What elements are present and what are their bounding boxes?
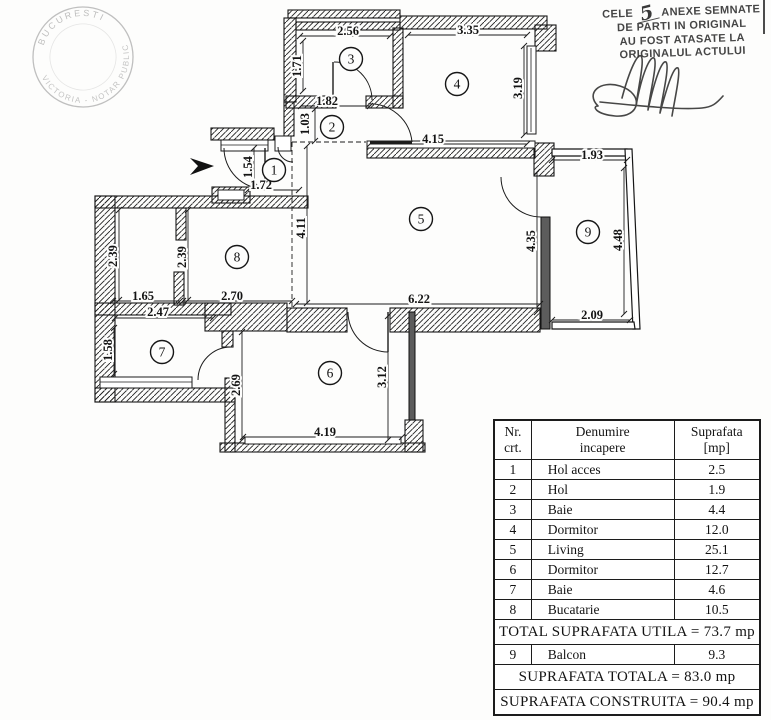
area-cell: 2.5	[674, 460, 760, 480]
row-number-cell: 2	[494, 480, 531, 500]
room-name-cell: Baie	[531, 580, 674, 600]
table-row: 1Hol acces2.5	[494, 460, 760, 480]
dimension-label: 4.15	[422, 132, 444, 146]
dimension-label: 3.19	[511, 77, 525, 99]
scanned-document-page: BUCURESTI VICTORIA - NOTAR PUBLIC CELE 5…	[0, 0, 771, 720]
table-row: 5Living25.1	[494, 540, 760, 560]
area-cell: 12.7	[674, 560, 760, 580]
dimension-label: 3.12	[375, 366, 389, 388]
dimension-label: 2.39	[106, 245, 120, 267]
room-number: 9	[585, 225, 592, 240]
total-area-row-text: SUPRAFATA TOTALA = 83.0 mp	[494, 665, 760, 690]
dimension-label: 2.69	[229, 374, 243, 396]
dimension-label: 2.47	[147, 305, 169, 319]
area-cell: 12.0	[674, 520, 760, 540]
area-cell: 9.3	[674, 645, 760, 665]
room-number: 2	[329, 120, 336, 135]
room-number: 7	[159, 345, 166, 360]
door-swing-arc	[198, 347, 231, 380]
room-name-cell: Hol	[531, 480, 674, 500]
dimension-label: 2.70	[221, 289, 243, 303]
column-header: Nr. crt.	[494, 420, 531, 460]
built-area-row: SUPRAFATA CONSTRUITA = 90.4 mp	[494, 690, 760, 716]
room-areas-table: Nr. crt.Denumire incapereSuprafata [mp] …	[493, 419, 761, 716]
room-number: 3	[348, 52, 355, 67]
dimension-label: 4.19	[314, 425, 336, 439]
dimension-label: 2.56	[337, 24, 359, 38]
dimension-label: 1.93	[581, 148, 603, 162]
table-row: 3Baie4.4	[494, 500, 760, 520]
dimension-label: 1.65	[132, 289, 154, 303]
wall-hatched	[174, 272, 184, 305]
dimension-label: 3.35	[457, 23, 479, 37]
wall-hatched	[535, 25, 556, 51]
window	[218, 190, 244, 200]
room-name-cell: Dormitor	[531, 520, 674, 540]
dimension-label: 2.09	[581, 308, 603, 322]
column-header: Denumire incapere	[531, 420, 674, 460]
row-number-cell: 9	[494, 645, 531, 665]
room-name-cell: Bucatarie	[531, 600, 674, 620]
row-number-cell: 3	[494, 500, 531, 520]
row-number-cell: 7	[494, 580, 531, 600]
table-row: 9Balcon9.3	[494, 645, 760, 665]
dimension-label: 4.35	[524, 230, 538, 252]
dimension-label: 1.82	[316, 94, 338, 108]
wall-hatched	[405, 420, 423, 452]
row-number-cell: 4	[494, 520, 531, 540]
wall-hatched	[222, 331, 233, 347]
wall-hatched	[284, 102, 294, 136]
door-swing-arc	[501, 177, 541, 217]
area-cell: 1.9	[674, 480, 760, 500]
wall-hatched	[205, 303, 287, 331]
table-row: 2Hol1.9	[494, 480, 760, 500]
dimension-label: 4.48	[611, 229, 625, 251]
wall-hatched	[288, 10, 400, 18]
room-number: 8	[234, 250, 241, 265]
wall-hatched	[95, 196, 308, 208]
table-row: 4Dormitor12.0	[494, 520, 760, 540]
room-name-cell: Living	[531, 540, 674, 560]
dimension-label: 6.22	[408, 292, 430, 306]
room-name-cell: Baie	[531, 500, 674, 520]
area-cell: 4.4	[674, 500, 760, 520]
wall-hatched	[95, 388, 235, 402]
dimension-label: 4.11	[294, 217, 308, 238]
wall-hatched	[534, 143, 554, 176]
balcony-parapet	[552, 322, 635, 329]
table-row: 6Dormitor12.7	[494, 560, 760, 580]
wall-solid	[409, 312, 415, 420]
wall-hatched	[211, 128, 274, 140]
dimension-label: 1.71	[290, 55, 304, 77]
floor-plan: 2.563.351.711.821.033.194.151.541.724.11…	[0, 0, 771, 470]
total-useful-area-row-text: TOTAL SUPRAFATA UTILA = 73.7 mp	[494, 620, 760, 645]
window	[275, 136, 291, 151]
row-number-cell: 6	[494, 560, 531, 580]
window	[100, 377, 192, 388]
door-swing-arc	[348, 312, 388, 352]
wall-hatched	[367, 148, 535, 158]
room-name-cell: Dormitor	[531, 560, 674, 580]
row-number-cell: 8	[494, 600, 531, 620]
dimension-label: 1.03	[298, 113, 312, 135]
room-number: 4	[454, 77, 461, 92]
row-number-cell: 5	[494, 540, 531, 560]
area-cell: 25.1	[674, 540, 760, 560]
door-swing-arc	[368, 104, 412, 142]
table-row: 7Baie4.6	[494, 580, 760, 600]
area-cell: 4.6	[674, 580, 760, 600]
window	[221, 140, 268, 151]
dimension-label: 1.58	[101, 339, 115, 361]
area-cell: 10.5	[674, 600, 760, 620]
wall-hatched	[95, 196, 115, 402]
window	[527, 46, 536, 134]
total-useful-area-row: TOTAL SUPRAFATA UTILA = 73.7 mp	[494, 620, 760, 645]
wall-hatched	[176, 208, 186, 240]
room-name-cell: Hol acces	[531, 460, 674, 480]
wall-solid	[541, 217, 550, 329]
room-number: 5	[418, 212, 425, 227]
built-area-row-text: SUPRAFATA CONSTRUITA = 90.4 mp	[494, 690, 760, 716]
room-name-cell: Balcon	[531, 645, 674, 665]
row-number-cell: 1	[494, 460, 531, 480]
table-row: 8Bucatarie10.5	[494, 600, 760, 620]
room-number: 1	[271, 163, 278, 178]
balcony-parapet	[625, 149, 640, 329]
entrance-arrow-icon	[190, 158, 214, 175]
dimension-label: 2.39	[175, 246, 189, 268]
total-area-row: SUPRAFATA TOTALA = 83.0 mp	[494, 665, 760, 690]
column-header: Suprafata [mp]	[674, 420, 760, 460]
room-number: 6	[327, 366, 334, 381]
wall-hatched	[287, 308, 347, 332]
dimension-label: 1.54	[241, 155, 255, 178]
